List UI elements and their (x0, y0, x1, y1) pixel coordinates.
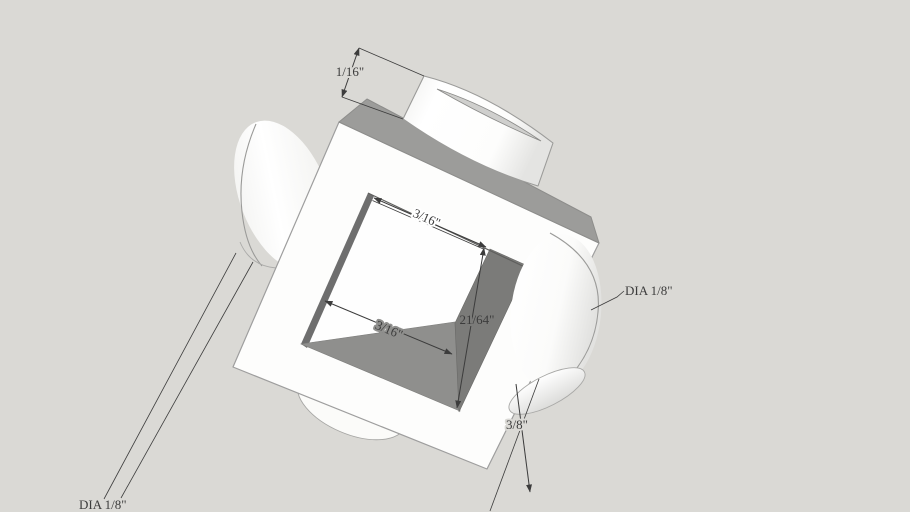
dim-label-hole-depth: 21/64" (460, 312, 495, 327)
leader-label-dia-right: DIA 1/8" (625, 283, 673, 298)
dim-label-boss-length: 3/8" (506, 417, 528, 432)
leader-label-dia-left: DIA 1/8" (79, 497, 127, 512)
model-viewport[interactable]: 1/16" 3/16" 3/16" 21/64" DIA 1/8" 3/8" (0, 0, 910, 512)
dim-label-boss-height: 1/16" (336, 64, 364, 79)
model-canvas: 1/16" 3/16" 3/16" 21/64" DIA 1/8" 3/8" (0, 0, 910, 512)
